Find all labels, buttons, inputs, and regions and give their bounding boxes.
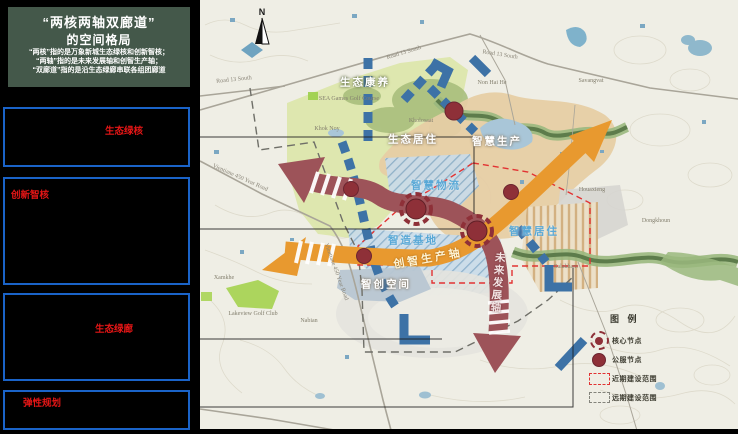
long-term-boundary-icon	[586, 392, 612, 403]
legend-item-service-node: 公服节点	[586, 350, 696, 369]
green-patch	[201, 292, 212, 301]
core-node-icon	[586, 331, 612, 350]
title-box: “两核两轴双廊道” 的空间格局 “两核”指的是万象新城生态绿核和创新智核； “两…	[8, 7, 190, 87]
title-line1: “两核两轴双廊道”	[8, 12, 190, 31]
box-label: 生态绿廊	[95, 321, 133, 335]
sidebar-box-eco-corridor: 生态绿廊	[3, 293, 190, 381]
near-term-boundary-icon	[586, 373, 612, 385]
sidebar-box-eco-green-core: 生态绿核	[3, 107, 190, 167]
box-label: 创新智核	[11, 187, 49, 201]
box-label: 生态绿核	[105, 123, 143, 137]
planning-slide: “两核两轴双廊道” 的空间格局 “两核”指的是万象新城生态绿核和创新智核； “两…	[0, 0, 738, 434]
compass-needle-icon	[254, 17, 270, 45]
legend-label: 公服节点	[612, 355, 642, 365]
subtitle-line3: “双廊道”指的是沿生态绿廊串联各组团廊道	[8, 66, 190, 75]
subtitle-line1: “两核”指的是万象新城生态绿核和创新智核；	[8, 48, 190, 57]
legend-item-core-node: 核心节点	[586, 331, 696, 350]
box-label: 弹性规划	[23, 395, 61, 409]
legend-item-near-term: 近期建设范围	[586, 369, 696, 388]
subtitle-line2: “两轴”指的是未来发展轴和创智生产轴；	[8, 57, 190, 66]
north-label: N	[252, 8, 272, 17]
sidebar-box-innovation-core: 创新智核	[3, 177, 190, 285]
north-arrow: N	[252, 8, 272, 50]
sidebar: “两核两轴双廊道” 的空间格局 “两核”指的是万象新城生态绿核和创新智核； “两…	[0, 0, 200, 434]
legend-label: 近期建设范围	[612, 374, 657, 384]
title-line2: 的空间格局	[8, 31, 190, 48]
legend-label: 远期建设范围	[612, 393, 657, 403]
sidebar-box-flexible-planning: 弹性规划	[3, 390, 190, 430]
service-node-icon	[586, 353, 612, 367]
bottom-strip	[200, 429, 738, 434]
green-patch-2	[308, 92, 318, 100]
legend: 图 例 核心节点 公服节点 近期建设范围 远期建设范围	[586, 312, 696, 407]
legend-title: 图 例	[610, 312, 696, 325]
legend-item-long-term: 远期建设范围	[586, 388, 696, 407]
legend-label: 核心节点	[612, 336, 642, 346]
